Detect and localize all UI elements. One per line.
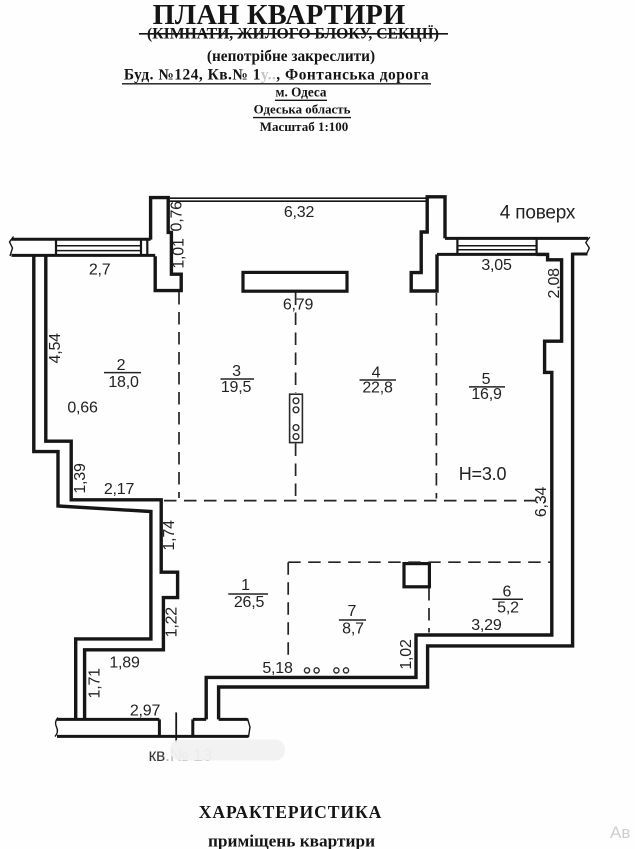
svg-text:2,17: 2,17 <box>104 481 135 498</box>
svg-text:3: 3 <box>232 363 241 380</box>
svg-text:1,39: 1,39 <box>72 463 89 494</box>
svg-text:1,74: 1,74 <box>161 520 178 551</box>
svg-text:Н=3.0: Н=3.0 <box>459 464 507 484</box>
svg-text:м. Одеса: м. Одеса <box>276 85 327 100</box>
svg-text:7: 7 <box>347 603 356 620</box>
svg-text:4 поверх: 4 поверх <box>500 203 576 224</box>
svg-text:4,54: 4,54 <box>47 333 64 364</box>
svg-text:ХАРАКТЕРИСТИКА: ХАРАКТЕРИСТИКА <box>199 802 382 822</box>
svg-text:1,01: 1,01 <box>171 238 188 269</box>
svg-text:Масштаб 1:100: Масштаб 1:100 <box>260 119 349 134</box>
svg-text:1,71: 1,71 <box>87 668 104 699</box>
svg-text:приміщень квартири: приміщень квартири <box>208 832 375 849</box>
svg-text:2: 2 <box>117 357 126 374</box>
svg-text:19,5: 19,5 <box>221 379 252 396</box>
svg-text:3,29: 3,29 <box>471 617 502 634</box>
svg-text:3,05: 3,05 <box>481 257 512 274</box>
svg-text:1,22: 1,22 <box>164 607 181 638</box>
svg-text:5,2: 5,2 <box>497 600 519 617</box>
svg-text:2,97: 2,97 <box>130 703 161 720</box>
svg-text:8,7: 8,7 <box>342 621 364 638</box>
svg-text:1,89: 1,89 <box>109 655 140 672</box>
svg-text:5,18: 5,18 <box>262 660 293 677</box>
svg-text:Одеська область: Одеська область <box>254 103 351 117</box>
svg-text:6,79: 6,79 <box>283 297 314 314</box>
svg-text:6: 6 <box>502 584 511 601</box>
svg-text:0,66: 0,66 <box>67 400 98 417</box>
svg-text:Буд. №124, Кв.№ 1у.., Фонтансь: Буд. №124, Кв.№ 1у.., Фонтанська дорога <box>124 67 429 84</box>
svg-text:6,32: 6,32 <box>284 204 315 221</box>
svg-text:(непотрібне закреслити): (непотрібне закреслити) <box>207 48 375 65</box>
svg-text:2,08: 2,08 <box>546 268 563 299</box>
svg-text:0,76: 0,76 <box>169 201 186 232</box>
svg-text:1: 1 <box>241 577 250 594</box>
svg-text:26,5: 26,5 <box>234 594 265 611</box>
svg-text:18,0: 18,0 <box>108 374 139 391</box>
svg-text:16,9: 16,9 <box>471 386 502 403</box>
svg-text:1,02: 1,02 <box>398 639 415 670</box>
svg-text:Ав: Ав <box>610 823 630 842</box>
svg-text:22,8: 22,8 <box>362 380 393 397</box>
svg-text:6,34: 6,34 <box>533 487 550 518</box>
svg-text:2,7: 2,7 <box>89 262 111 279</box>
